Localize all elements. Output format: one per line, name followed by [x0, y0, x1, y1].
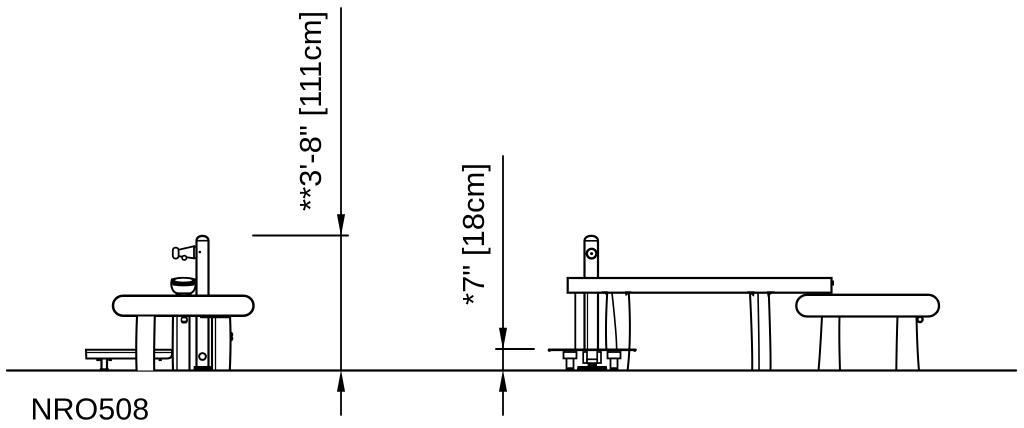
svg-text:*7" [18cm]: *7" [18cm] [456, 163, 491, 305]
svg-text:NRO508: NRO508 [31, 392, 150, 426]
svg-text:**3'-8" [111cm]: **3'-8" [111cm] [293, 11, 328, 211]
